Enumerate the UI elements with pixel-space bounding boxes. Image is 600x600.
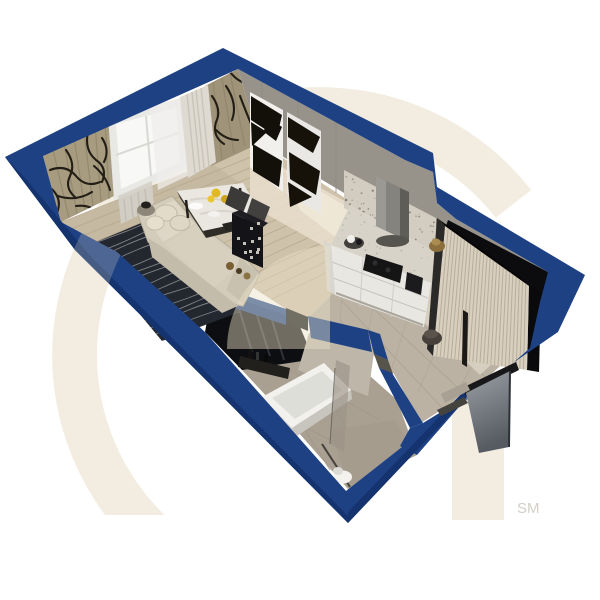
svg-text:SM: SM xyxy=(517,500,540,517)
